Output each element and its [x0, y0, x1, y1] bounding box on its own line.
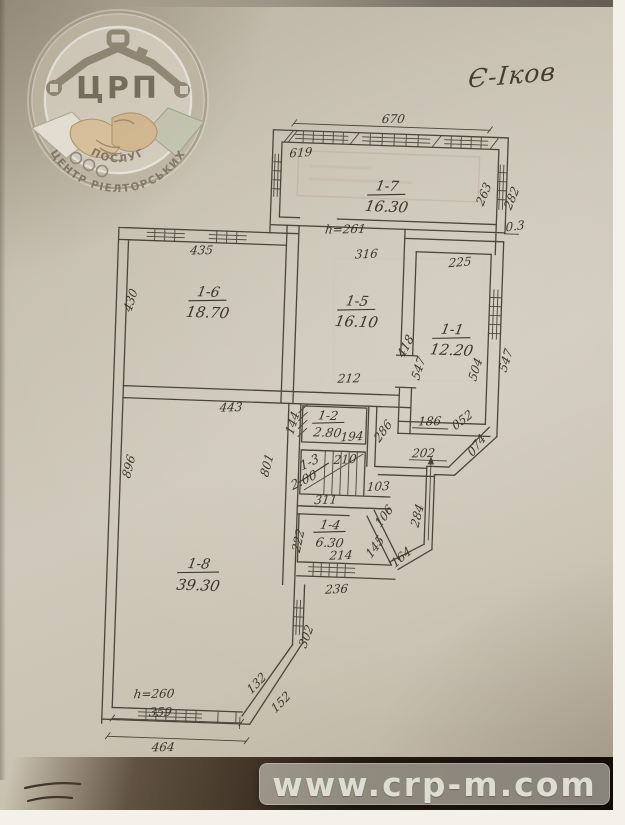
- dim-214: 214: [328, 548, 353, 563]
- svg-text:16.10: 16.10: [333, 312, 379, 331]
- photo-frame-bottom: [0, 810, 625, 825]
- room-label-1-6: 1-6 18.70: [185, 284, 232, 322]
- svg-text:39.30: 39.30: [175, 576, 221, 595]
- room-label-1-3: 1-3 2.00: [288, 449, 330, 494]
- svg-text:12.20: 12.20: [429, 340, 475, 359]
- dim-670: 670: [381, 112, 406, 126]
- dim-194: 194: [340, 429, 364, 445]
- dim-464: 464: [150, 740, 176, 754]
- floor-plan-drawing: 1-7 16.30 1-6 18.70 1-5 16.10 1-1 12.20 …: [0, 0, 625, 825]
- dim-222: 222: [289, 527, 307, 555]
- dim-145: 145: [363, 533, 387, 561]
- dim-052: 052: [450, 407, 475, 433]
- dim-152: 152: [269, 688, 294, 716]
- dim-202: 202: [410, 446, 436, 460]
- svg-text:1-1: 1-1: [439, 322, 464, 339]
- dim-225: 225: [447, 254, 472, 270]
- watermark-url: www.crp-m.com: [272, 765, 597, 804]
- svg-text:1-7: 1-7: [374, 178, 399, 195]
- svg-text:1-2: 1-2: [317, 408, 340, 424]
- svg-text:1-5: 1-5: [344, 293, 369, 310]
- watermark-banner: www.crp-m.com: [259, 763, 610, 805]
- dim-132: 132: [244, 670, 269, 698]
- dim-619: 619: [289, 145, 313, 161]
- dim-302: 302: [296, 622, 316, 650]
- dim-106: 106: [372, 502, 396, 531]
- dim-443: 443: [218, 400, 244, 415]
- room-label-1-5: 1-5 16.10: [333, 293, 380, 331]
- dim-210: 210: [332, 452, 357, 467]
- dim-263: 263: [473, 180, 494, 209]
- svg-text:1-8: 1-8: [186, 556, 211, 573]
- svg-text:16.30: 16.30: [364, 197, 410, 216]
- dim-212: 212: [336, 371, 362, 385]
- svg-text:1-6: 1-6: [196, 284, 221, 301]
- dim-282: 282: [501, 184, 522, 213]
- photo-of-floor-plan: ЦРП ЦЕНТР РІЕЛТОРСЬКИХ ПОСЛУГ: [0, 0, 625, 825]
- dim-547-left: 547: [409, 354, 429, 382]
- dim-186: 186: [417, 414, 442, 428]
- dim-h261: h=261: [324, 222, 366, 237]
- dim-0-3: 0.3: [506, 218, 525, 235]
- photo-frame-right: [613, 0, 625, 825]
- dim-316: 316: [354, 246, 378, 261]
- room-label-1-1: 1-1 12.20: [429, 321, 476, 359]
- svg-text:2.80: 2.80: [311, 424, 342, 440]
- dim-359: 359: [148, 705, 173, 719]
- dim-896: 896: [120, 452, 139, 480]
- dim-311: 311: [314, 492, 338, 507]
- svg-text:18.70: 18.70: [185, 303, 231, 322]
- dim-430: 430: [121, 286, 141, 315]
- dim-h260: h=260: [133, 687, 176, 702]
- dim-284: 284: [408, 502, 427, 530]
- room-label-1-4: 1-4 6.30: [313, 516, 346, 550]
- room-label-1-8: 1-8 39.30: [175, 556, 222, 595]
- dim-435: 435: [188, 243, 214, 257]
- dim-286: 286: [371, 417, 395, 446]
- svg-text:1-4: 1-4: [319, 517, 342, 533]
- dim-103: 103: [366, 479, 390, 494]
- dim-236: 236: [324, 582, 349, 597]
- dim-801: 801: [258, 452, 277, 479]
- dim-547-right: 547: [496, 346, 516, 374]
